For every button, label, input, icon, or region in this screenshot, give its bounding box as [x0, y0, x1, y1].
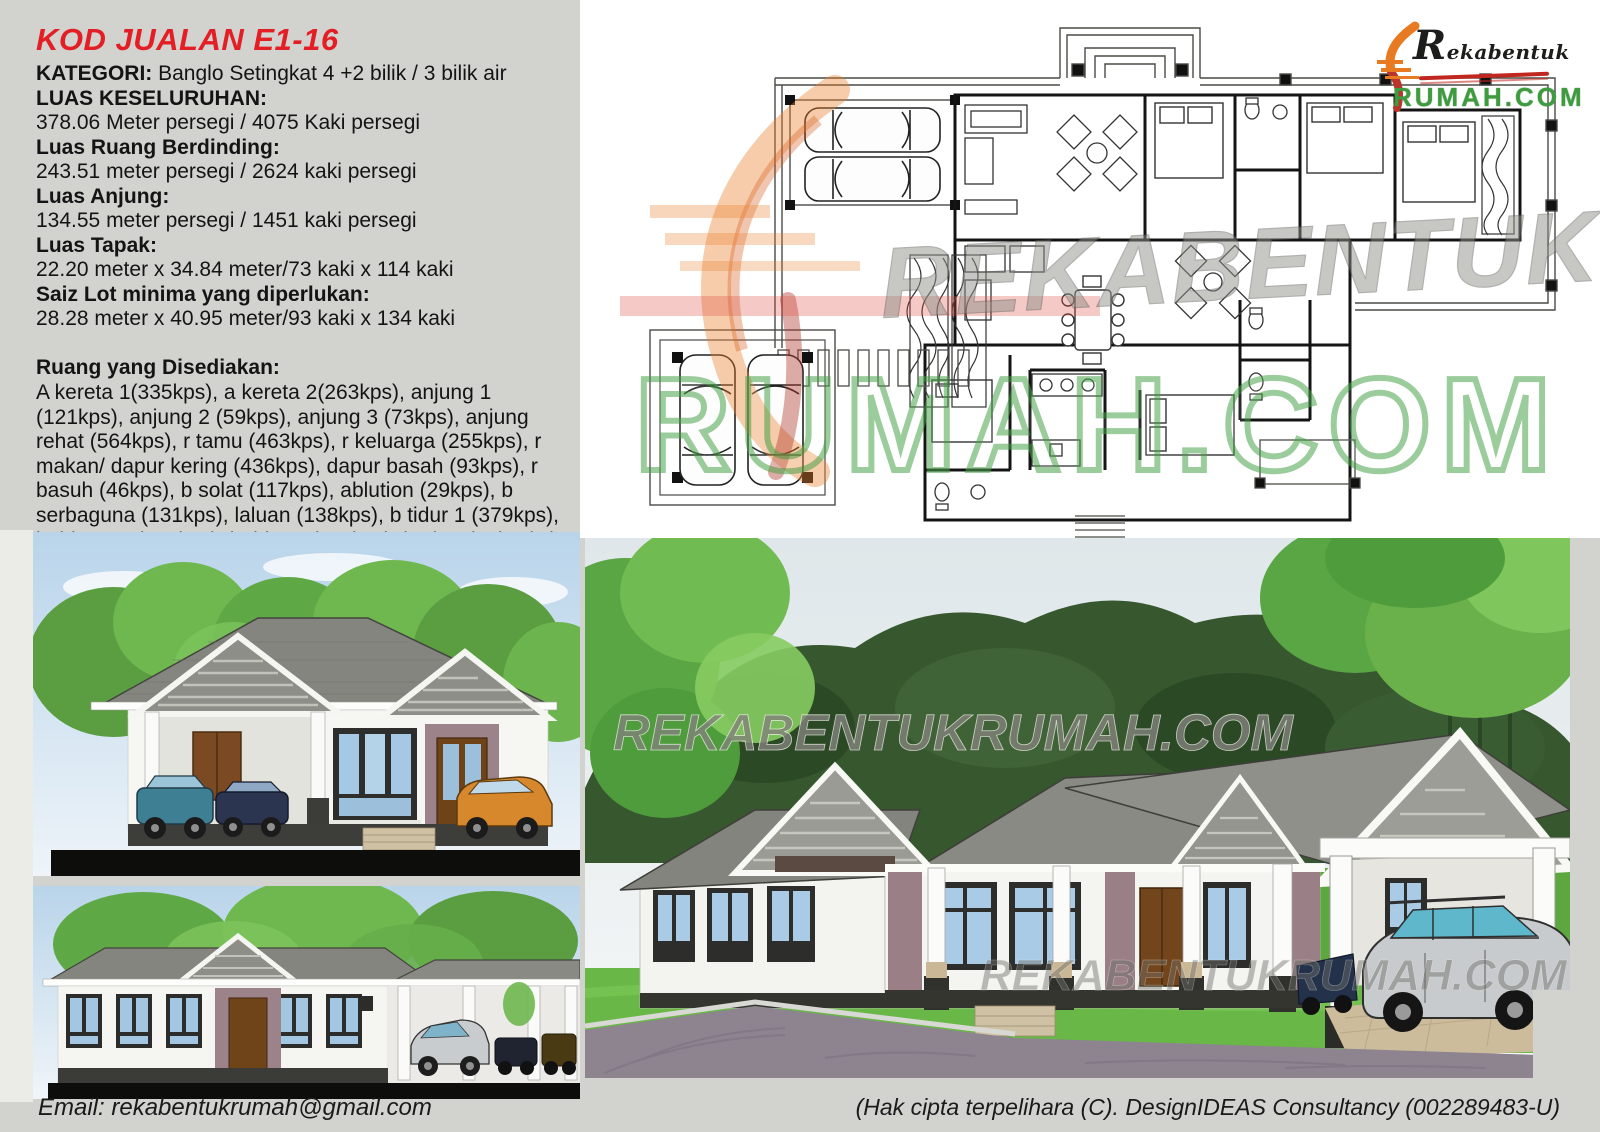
- sale-code-title: KOD JUALAN E1-16: [36, 22, 575, 58]
- front-elevation-render: [33, 532, 580, 876]
- rooms-label: Ruang yang Disediakan:: [36, 356, 575, 381]
- logo-brand-name: Rekabentuk: [1413, 36, 1570, 64]
- spec-label: LUAS KESELURUHAN:: [36, 87, 575, 112]
- category-line: KATEGORI: Banglo Setingkat 4 +2 bilik / …: [36, 62, 575, 87]
- logo-underline: [1419, 72, 1549, 81]
- page-corner: [1533, 990, 1570, 1078]
- render-watermark-bottom: REKABENTUKRUMAH.COM: [980, 951, 1568, 1000]
- logo-domain: RUMAH.COM: [1393, 82, 1585, 113]
- spec-label: Luas Anjung:: [36, 185, 575, 210]
- render-watermark-top: REKABENTUKRUMAH.COM: [613, 704, 1294, 761]
- side-elevation-render: [33, 886, 580, 1099]
- info-panel: KOD JUALAN E1-16 KATEGORI: Banglo Seting…: [30, 16, 575, 578]
- left-margin: [0, 530, 33, 1102]
- porch-steps: [363, 828, 435, 850]
- category-value: Banglo Setingkat 4 +2 bilik / 3 bilik ai…: [152, 62, 506, 85]
- spec-label: Saiz Lot minima yang diperlukan:: [36, 283, 575, 308]
- company-logo: Rekabentuk RUMAH.COM: [1375, 18, 1560, 118]
- front-window: [329, 728, 421, 826]
- perspective-render: REKABENTUKRUMAH.COM: [585, 538, 1570, 1078]
- plan-watermark-domain: RUMAH.COM: [635, 351, 1561, 498]
- carport-car-2: [805, 157, 940, 201]
- spec-label: Luas Tapak:: [36, 234, 575, 259]
- floor-plan-panel: REKABENTUK RUMAH.COM Rekabentuk RUMAH.CO…: [580, 0, 1600, 538]
- carport-3d: [1297, 838, 1570, 1060]
- spec-value: 243.51 meter persegi / 2624 kaki persegi: [36, 160, 575, 185]
- spec-value: 28.28 meter x 40.95 meter/93 kaki x 134 …: [36, 307, 575, 332]
- brochure-page: REKABENTUK RUMAH.COM Rekabentuk RUMAH.CO…: [0, 0, 1600, 1132]
- spec-value: 22.20 meter x 34.84 meter/73 kaki x 114 …: [36, 258, 575, 283]
- ground-bar: [51, 850, 580, 876]
- spec-label: Luas Ruang Berdinding:: [36, 136, 575, 161]
- spec-value: 134.55 meter persegi / 1451 kaki persegi: [36, 209, 575, 234]
- copyright-caption: (Hak cipta terpelihara (C). DesignIDEAS …: [856, 1094, 1560, 1121]
- email-caption: Email: rekabentukrumah@gmail.com: [38, 1094, 432, 1122]
- spec-value: 378.06 Meter persegi / 4075 Kaki persegi: [36, 111, 575, 136]
- category-label: KATEGORI:: [36, 62, 152, 85]
